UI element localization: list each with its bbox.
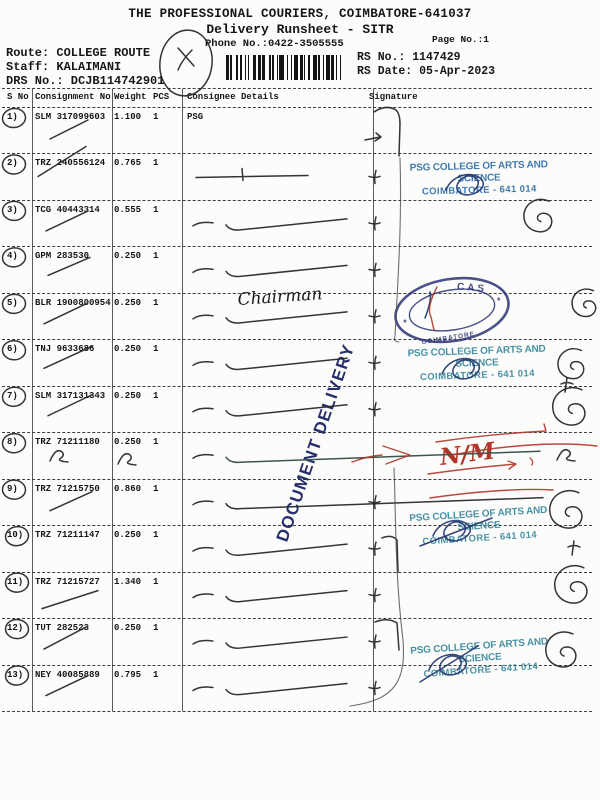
row-consignee: PSG xyxy=(187,112,203,122)
row-sno: 10) xyxy=(7,530,23,540)
table-row: 4) GPM 283530 0.250 1 xyxy=(2,246,592,292)
rs-date: RS Date: 05-Apr-2023 xyxy=(357,65,495,78)
row-pcs: 1 xyxy=(153,484,158,494)
page-number: Page No.:1 xyxy=(432,34,489,45)
row-sno: 8) xyxy=(7,437,18,447)
row-pcs: 1 xyxy=(153,298,158,308)
header-signature: Signature xyxy=(369,92,418,102)
row-consignment: TNJ 9633686 xyxy=(35,344,94,354)
table-row: 1) SLM 317099603 1.100 1 PSG xyxy=(2,107,592,153)
row-sno: 12) xyxy=(7,623,23,633)
header-pcs: PCS xyxy=(153,92,169,102)
row-weight: 0.795 xyxy=(114,670,141,680)
row-consignment: SLM 317099603 xyxy=(35,112,105,122)
route-label: Route: COLLEGE ROUTE xyxy=(6,46,150,60)
row-pcs: 1 xyxy=(153,205,158,215)
row-consignment: SLM 317131343 xyxy=(35,391,105,401)
row-pcs: 1 xyxy=(153,623,158,633)
row-sno: 4) xyxy=(7,251,18,261)
table-header-row: S No Consignment No Weight PCS Consignee… xyxy=(2,89,592,107)
row-pcs: 1 xyxy=(153,670,158,680)
document-subtitle: Delivery Runsheet - SITR xyxy=(0,22,600,37)
ink-stroke xyxy=(178,48,194,70)
row-pcs: 1 xyxy=(153,251,158,261)
row-weight: 0.765 xyxy=(114,158,141,168)
drs-number: DRS No.: DCJB114742901 xyxy=(6,74,164,88)
row-pcs: 1 xyxy=(153,344,158,354)
row-sno: 2) xyxy=(7,158,18,168)
row-weight: 0.250 xyxy=(114,530,141,540)
row-consignment: TRZ 71215727 xyxy=(35,577,100,587)
psg-college-stamp: PSG COLLEGE OF ARTS AND SCIENCE COIMBATO… xyxy=(387,343,566,384)
row-consignment: TCG 40443314 xyxy=(35,205,100,215)
phone-number: Phone No.:0422-3505555 xyxy=(205,38,344,50)
header-consignment: Consignment No xyxy=(35,92,111,102)
row-weight: 0.250 xyxy=(114,437,141,447)
row-pcs: 1 xyxy=(153,391,158,401)
row-pcs: 1 xyxy=(153,577,158,587)
runsheet-page: THE PROFESSIONAL COURIERS, COIMBATORE-64… xyxy=(0,0,600,800)
row-weight: 0.250 xyxy=(114,251,141,261)
row-weight: 0.250 xyxy=(114,344,141,354)
row-sno: 3) xyxy=(7,205,18,215)
rs-number: RS No.: 1147429 xyxy=(357,51,461,64)
row-consignment: TRZ 240556124 xyxy=(35,158,105,168)
row-pcs: 1 xyxy=(153,158,158,168)
header-weight: Weight xyxy=(114,92,146,102)
header-consignee: Consignee Details xyxy=(187,92,279,102)
row-weight: 0.250 xyxy=(114,298,141,308)
row-sno: 7) xyxy=(7,391,18,401)
row-consignment: TUT 282523 xyxy=(35,623,89,633)
row-consignment: NEY 40085889 xyxy=(35,670,100,680)
table-row: 5) BLR 1900800954 0.250 1 xyxy=(2,293,592,339)
row-sno: 11) xyxy=(7,577,23,587)
table-row: 3) TCG 40443314 0.555 1 xyxy=(2,200,592,246)
row-weight: 0.555 xyxy=(114,205,141,215)
company-title: THE PROFESSIONAL COURIERS, COIMBATORE-64… xyxy=(0,7,600,21)
staff-label: Staff: KALAIMANI xyxy=(6,60,121,74)
rs-barcode xyxy=(226,55,354,80)
psg-college-stamp: PSG COLLEGE OF ARTS AND SCIENCE COIMBATO… xyxy=(390,159,569,198)
row-consignment: TRZ 71215750 xyxy=(35,484,100,494)
row-consignment: GPM 283530 xyxy=(35,251,89,261)
row-sno: 6) xyxy=(7,344,18,354)
row-pcs: 1 xyxy=(153,530,158,540)
row-sno: 1) xyxy=(7,112,18,122)
row-consignment: TRZ 71211147 xyxy=(35,530,100,540)
row-pcs: 1 xyxy=(153,437,158,447)
row-weight: 0.250 xyxy=(114,391,141,401)
row-pcs: 1 xyxy=(153,112,158,122)
table-row: 7) SLM 317131343 0.250 1 xyxy=(2,386,592,432)
row-sno: 9) xyxy=(7,484,18,494)
row-weight: 1.340 xyxy=(114,577,141,587)
table-row: 11) TRZ 71215727 1.340 1 xyxy=(2,572,592,618)
row-sno: 13) xyxy=(7,670,23,680)
row-sno: 5) xyxy=(7,298,18,308)
row-weight: 1.100 xyxy=(114,112,141,122)
row-consignment: TRZ 71211180 xyxy=(35,437,100,447)
row-consignment: BLR 1900800954 xyxy=(35,298,111,308)
row-weight: 0.250 xyxy=(114,623,141,633)
header-sno: S No xyxy=(7,92,29,102)
row-weight: 0.860 xyxy=(114,484,141,494)
